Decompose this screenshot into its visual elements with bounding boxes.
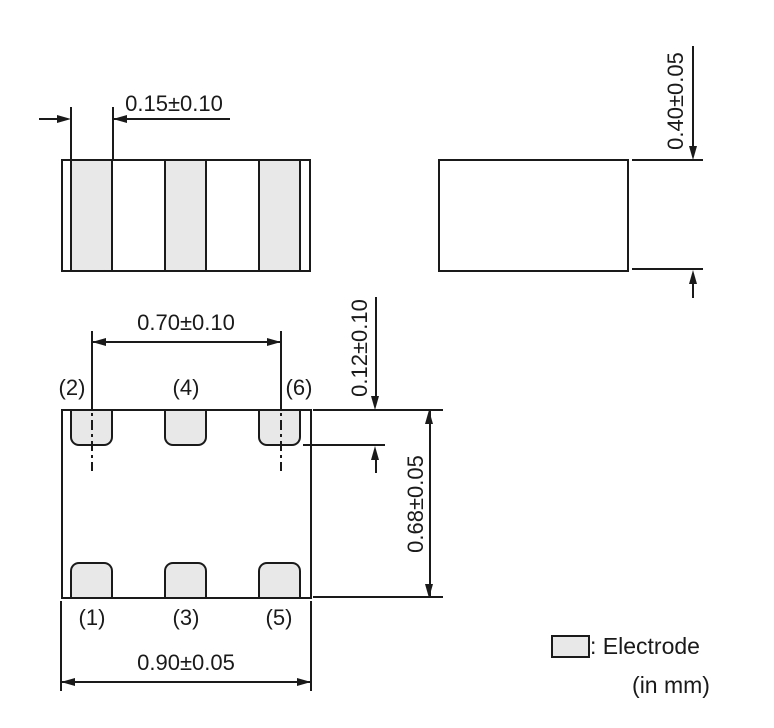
- dimension-line: [113, 118, 230, 120]
- dimension-line: [375, 459, 377, 473]
- electrode-pad-5: [258, 562, 301, 597]
- arrowhead-left-icon: [92, 338, 106, 346]
- arrowhead-left-icon: [113, 115, 127, 123]
- arrowhead-right-icon: [57, 115, 71, 123]
- dimension-line: [61, 681, 311, 683]
- terminal-label-1: (1): [67, 606, 117, 630]
- electrode-stripe: [164, 161, 207, 270]
- arrowhead-down-icon: [689, 146, 697, 160]
- electrode-stripe: [258, 161, 301, 270]
- arrowhead-up-icon: [689, 270, 697, 284]
- dimension-line: [429, 410, 431, 598]
- arrowhead-down-icon: [371, 396, 379, 410]
- terminal-label-3: (3): [161, 606, 211, 630]
- arrowhead-up-icon: [425, 410, 433, 424]
- centerline: [91, 399, 93, 471]
- dimension-drawing: 0.15±0.10 0.40±0.05 0.70±0.10 (2) (4) (6…: [0, 0, 774, 728]
- arrowhead-right-icon: [297, 678, 311, 686]
- dimension-line: [375, 297, 377, 396]
- dimension-line: [39, 118, 59, 120]
- dimension-line: [692, 284, 694, 298]
- electrode-stripe: [70, 161, 113, 270]
- arrowhead-right-icon: [267, 338, 281, 346]
- legend-electrode-label: : Electrode: [590, 633, 700, 659]
- terminal-label-4: (4): [161, 376, 211, 400]
- end-view-outline: [438, 159, 629, 272]
- centerline: [280, 399, 282, 471]
- dimension-line: [692, 46, 694, 146]
- terminal-label-5: (5): [254, 606, 304, 630]
- electrode-pad-3: [164, 562, 207, 597]
- dim-label-electrode-width: 0.15±0.10: [116, 92, 232, 116]
- electrode-pad-4: [164, 411, 207, 446]
- arrowhead-up-icon: [371, 446, 379, 460]
- legend-electrode-swatch: [551, 635, 590, 658]
- dim-label-width: 0.68±0.05: [404, 448, 428, 560]
- arrowhead-left-icon: [61, 678, 75, 686]
- terminal-label-6: (6): [274, 376, 324, 400]
- dimension-line: [92, 341, 281, 343]
- dim-label-height: 0.40±0.05: [664, 45, 688, 157]
- extension-line: [313, 596, 443, 598]
- terminal-label-2: (2): [47, 376, 97, 400]
- units-note: (in mm): [631, 672, 711, 698]
- electrode-pad-1: [70, 562, 113, 597]
- dim-label-electrode-depth: 0.12±0.10: [348, 292, 372, 404]
- dim-label-length: 0.90±0.05: [130, 651, 242, 675]
- arrowhead-down-icon: [425, 584, 433, 598]
- dim-label-pitch: 0.70±0.10: [130, 311, 242, 335]
